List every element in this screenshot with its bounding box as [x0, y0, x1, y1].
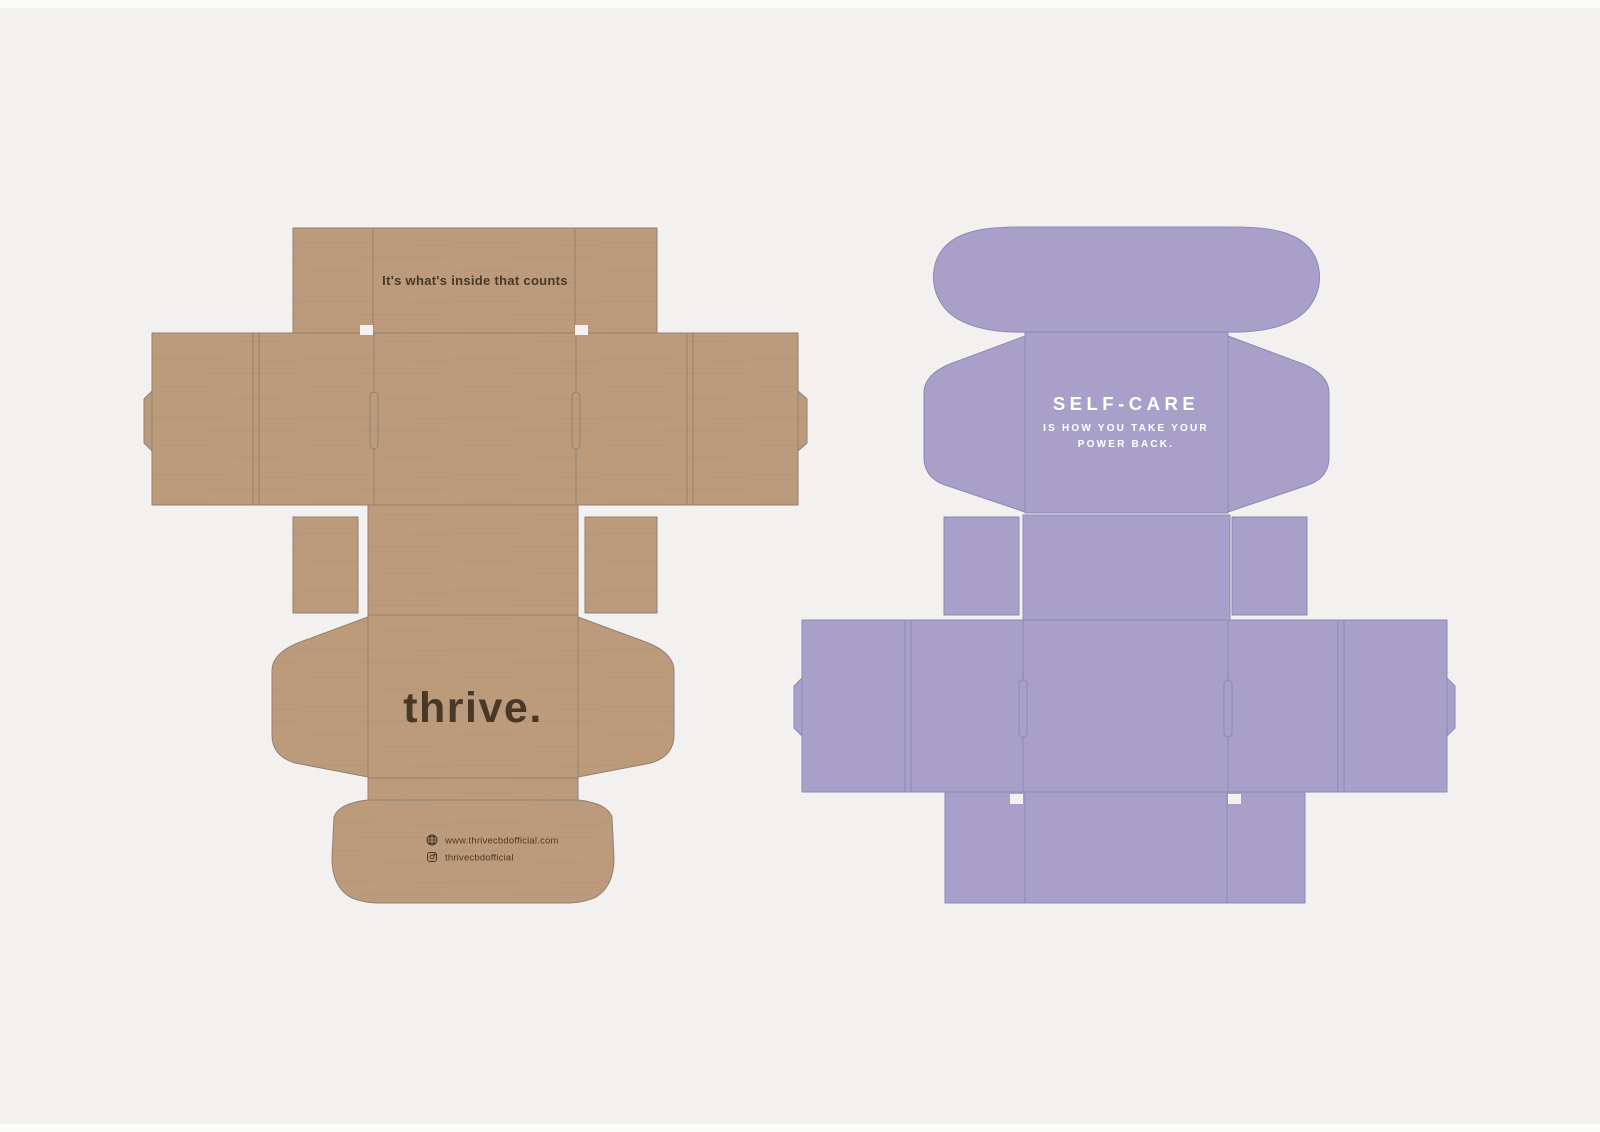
packaging-dieline-artboard: It's what's inside that counts thrive. w… [0, 0, 1600, 1132]
purple-tagline-line1: IS HOW YOU TAKE YOUR [1043, 423, 1209, 434]
kraft-slot-cut-left [370, 392, 378, 449]
purple-right-lock-tab [1447, 678, 1455, 736]
kraft-left-lock-tab [144, 391, 152, 451]
page-background [0, 0, 1600, 1132]
kraft-middle-band [152, 333, 798, 505]
kraft-tuck-lip [368, 778, 578, 800]
purple-headline: SELF-CARE [1053, 393, 1199, 414]
kraft-right-lock-tab [798, 391, 807, 451]
kraft-instagram-handle: thrivecbdofficial [445, 853, 514, 864]
purple-slot-cut-right [1224, 680, 1232, 737]
purple-left-lock-tab [794, 678, 802, 736]
dieline-canvas: It's what's inside that counts thrive. w… [0, 0, 1600, 1132]
kraft-front-wall-panel [368, 505, 578, 615]
purple-rounded-tuck-flap [933, 227, 1319, 332]
purple-side-wall-left [944, 517, 1019, 615]
kraft-website-url: www.thrivecbdofficial.com [444, 836, 559, 847]
bottom-margin-strip [0, 1124, 1600, 1132]
purple-side-wall-right [1232, 517, 1307, 615]
kraft-side-wall-right [585, 517, 657, 613]
purple-tagline-line2: POWER BACK. [1078, 439, 1174, 450]
purple-front-wall-panel [1023, 515, 1230, 620]
kraft-slot-cut-right [572, 392, 580, 449]
kraft-logo: thrive. [403, 684, 543, 732]
globe-icon [427, 835, 437, 845]
purple-middle-band [802, 620, 1447, 792]
top-margin-strip [0, 0, 1600, 8]
kraft-rounded-tuck-flap [332, 800, 614, 903]
purple-slot-cut-left [1019, 680, 1027, 737]
kraft-side-wall-left [293, 517, 358, 613]
purple-bottom-flap-row [945, 792, 1305, 903]
kraft-top-flap-quote: It's what's inside that counts [382, 273, 568, 288]
